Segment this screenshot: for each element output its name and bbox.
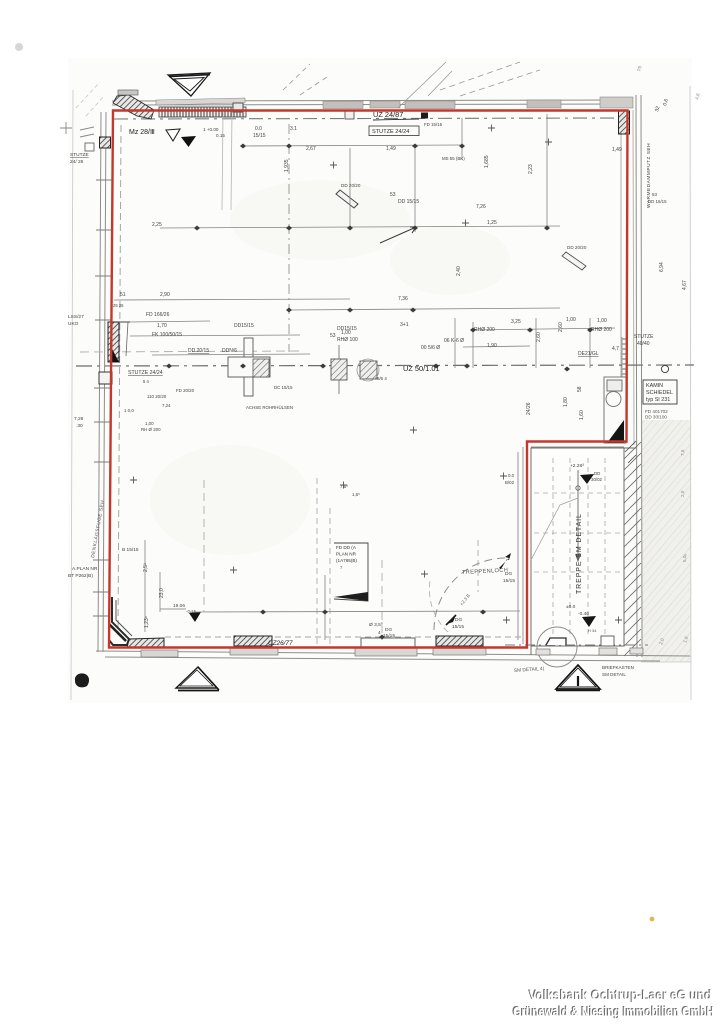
svg-text:2,5³: 2,5³: [143, 563, 149, 572]
svg-text:DDN/6: DDN/6: [222, 348, 237, 354]
svg-text:19.06: 19.06: [173, 603, 185, 609]
svg-text:7,26: 7,26: [476, 204, 486, 210]
svg-text:RHØ 200: RHØ 200: [591, 327, 612, 333]
svg-text:3+1: 3+1: [400, 322, 409, 328]
svg-text:1 +0.00: 1 +0.00: [203, 127, 219, 132]
svg-text:Volksbank Ochtrup-Laer eG und: Volksbank Ochtrup-Laer eG und: [529, 988, 712, 1003]
svg-text:STUTZE: STUTZE: [70, 152, 89, 158]
svg-text:2,60: 2,60: [558, 322, 564, 332]
svg-text:2,5: 2,5: [680, 490, 685, 497]
svg-text:3,25: 3,25: [511, 319, 521, 325]
svg-text:WARMEDAMMPUTZ SEH: WARMEDAMMPUTZ SEH: [646, 143, 652, 208]
svg-text:+2.28³: +2.28³: [570, 463, 584, 469]
svg-text:06 K-6 Ø: 06 K-6 Ø: [444, 338, 464, 344]
svg-text:58: 58: [577, 386, 583, 392]
svg-text:DD 20/20: DD 20/20: [341, 183, 361, 188]
svg-text:110 20/20: 110 20/20: [147, 394, 167, 399]
svg-text:1,685: 1,685: [484, 155, 490, 168]
svg-text:1,00: 1,00: [145, 421, 154, 426]
svg-text:00 5/6 Ø: 00 5/6 Ø: [421, 345, 440, 351]
svg-text:FK 100/50/15: FK 100/50/15: [152, 332, 182, 338]
svg-text:3.1: 3.1: [290, 126, 297, 132]
svg-text:STUTZE 24/24: STUTZE 24/24: [128, 370, 163, 376]
svg-text:DG: DG: [455, 617, 462, 623]
svg-text:±0.0: ±0.0: [566, 604, 576, 610]
svg-text:6,94: 6,94: [659, 262, 665, 272]
svg-text:LSS/27: LSS/27: [68, 314, 84, 320]
svg-text:1,90: 1,90: [487, 343, 497, 349]
svg-text:RHØ 200: RHØ 200: [474, 327, 495, 333]
svg-text:BRIEFKASTEN: BRIEFKASTEN: [602, 665, 634, 670]
svg-text:DC 15/15: DC 15/15: [274, 385, 293, 390]
svg-text:24/ 26: 24/ 26: [70, 159, 84, 165]
svg-text:4,7: 4,7: [612, 346, 619, 352]
svg-text:53: 53: [330, 333, 336, 339]
svg-text:typ SI 231: typ SI 231: [646, 397, 670, 403]
svg-text:DD 30/100: DD 30/100: [645, 415, 667, 420]
svg-text:(1A765(B): (1A765(B): [336, 558, 357, 563]
svg-text:25 26: 25 26: [113, 303, 124, 308]
svg-text:4: 4: [378, 630, 381, 636]
svg-text:1,49: 1,49: [386, 146, 396, 152]
svg-text:TREPPE SM DETAIL: TREPPE SM DETAIL: [576, 513, 583, 594]
svg-text:RHØ 100: RHØ 100: [337, 337, 358, 343]
svg-text:15/15: 15/15: [452, 624, 464, 630]
svg-text:1,935: 1,935: [284, 159, 290, 172]
svg-text:15/15: 15/15: [383, 633, 395, 639]
svg-text:SM DETAIL: SM DETAIL: [602, 672, 626, 677]
svg-text:8/5 4: 8/5 4: [377, 376, 387, 381]
svg-text:24/26: 24/26: [526, 402, 532, 415]
svg-text:53: 53: [652, 192, 657, 197]
svg-text:15/15: 15/15: [253, 133, 266, 139]
svg-text:B/02: B/02: [505, 480, 515, 485]
svg-text:FD 401702: FD 401702: [645, 409, 668, 414]
svg-text:0.0: 0.0: [255, 126, 262, 132]
svg-text:UZ26/77: UZ26/77: [268, 640, 293, 647]
svg-text:A.PLAN NR: A.PLAN NR: [72, 566, 98, 572]
svg-text:2,90: 2,90: [160, 292, 170, 298]
svg-text:1,23⁸: 1,23⁸: [144, 616, 150, 628]
svg-text:RH Ø 200: RH Ø 200: [141, 427, 161, 432]
svg-text:-0.46: -0.46: [578, 611, 589, 617]
svg-text:7,24: 7,24: [162, 403, 171, 408]
svg-text:0.15: 0.15: [216, 133, 225, 138]
svg-text:Grünewald & Niesing Immobilien: Grünewald & Niesing Immobilien GmbH: [513, 1005, 714, 1020]
svg-text:B 15/15: B 15/15: [122, 547, 139, 553]
svg-text:H 34: H 34: [588, 628, 597, 633]
svg-text:DG: DG: [505, 571, 512, 577]
svg-text:FD 15/15: FD 15/15: [424, 122, 443, 127]
svg-text:2,25: 2,25: [152, 222, 162, 228]
svg-text:1,00: 1,00: [566, 317, 576, 323]
svg-text:DD 15/15: DD 15/15: [398, 199, 419, 205]
svg-text:SCHIEDEL: SCHIEDEL: [646, 390, 673, 396]
svg-text:FD 166/26: FD 166/26: [146, 312, 170, 318]
svg-text:BT P262(B): BT P262(B): [68, 573, 93, 579]
svg-text:40/40: 40/40: [637, 341, 650, 347]
svg-text:FD 20/20: FD 20/20: [176, 388, 195, 393]
svg-text:1,25: 1,25: [487, 220, 497, 226]
svg-text:2,60: 2,60: [536, 332, 542, 342]
svg-text:1,6⁵: 1,6⁵: [352, 492, 360, 497]
svg-text:DD 20/20: DD 20/20: [567, 245, 587, 250]
svg-text:PLAN NR: PLAN NR: [336, 552, 357, 557]
svg-text:MS 55 (BK): MS 55 (BK): [442, 156, 465, 161]
svg-text:DD 20/15: DD 20/15: [188, 348, 209, 354]
svg-text:STUTZE 24/24: STUTZE 24/24: [372, 129, 409, 135]
svg-text:KAMIN: KAMIN: [646, 383, 663, 389]
svg-text:30/02: 30/02: [591, 477, 603, 482]
svg-text:1 0,0: 1 0,0: [124, 408, 134, 413]
svg-text:1,49: 1,49: [612, 147, 622, 153]
svg-text:1,80: 1,80: [563, 397, 569, 407]
svg-text:2,67: 2,67: [306, 146, 316, 152]
svg-text:23,0: 23,0: [159, 588, 165, 598]
svg-text:7,36: 7,36: [398, 296, 408, 302]
svg-text:0.0: 0.0: [508, 473, 515, 478]
svg-text:DD15/15: DD15/15: [234, 323, 254, 329]
svg-text:2,40: 2,40: [456, 266, 462, 276]
svg-text:1,00: 1,00: [597, 318, 607, 324]
svg-text:53: 53: [390, 192, 396, 198]
svg-text:Mz 28/Ⅲ: Mz 28/Ⅲ: [129, 129, 155, 136]
svg-text:Ø 3,5⁰: Ø 3,5⁰: [369, 622, 383, 628]
svg-text:ACHSE ROHRHÜLSEN: ACHSE ROHRHÜLSEN: [246, 405, 293, 410]
svg-text:DD: DD: [594, 471, 600, 476]
svg-text:1,60: 1,60: [579, 410, 585, 420]
svg-text:1,70: 1,70: [157, 323, 167, 329]
svg-text:5 4: 5 4: [143, 379, 149, 384]
svg-text:FD DD (A: FD DD (A: [336, 545, 357, 550]
svg-text:4,67: 4,67: [682, 280, 688, 290]
svg-text:1,00: 1,00: [341, 330, 351, 336]
svg-text:STUTZE: STUTZE: [634, 334, 654, 340]
svg-text:UZ 50/1.01: UZ 50/1.01: [403, 364, 440, 373]
svg-text:7,26: 7,26: [74, 416, 84, 422]
svg-text:2,23: 2,23: [528, 164, 534, 174]
svg-text:5,0ₑ: 5,0ₑ: [682, 554, 687, 562]
svg-text:DG: DG: [385, 627, 392, 633]
svg-text:7,6³: 7,6³: [340, 484, 348, 489]
svg-text:UKO: UKO: [68, 321, 79, 327]
svg-text:15/15: 15/15: [503, 578, 515, 584]
svg-text:.30: .30: [76, 423, 83, 429]
svg-text:DE21/GL: DE21/GL: [578, 351, 599, 357]
svg-text:51: 51: [120, 292, 126, 298]
svg-text:7,5: 7,5: [680, 449, 685, 456]
